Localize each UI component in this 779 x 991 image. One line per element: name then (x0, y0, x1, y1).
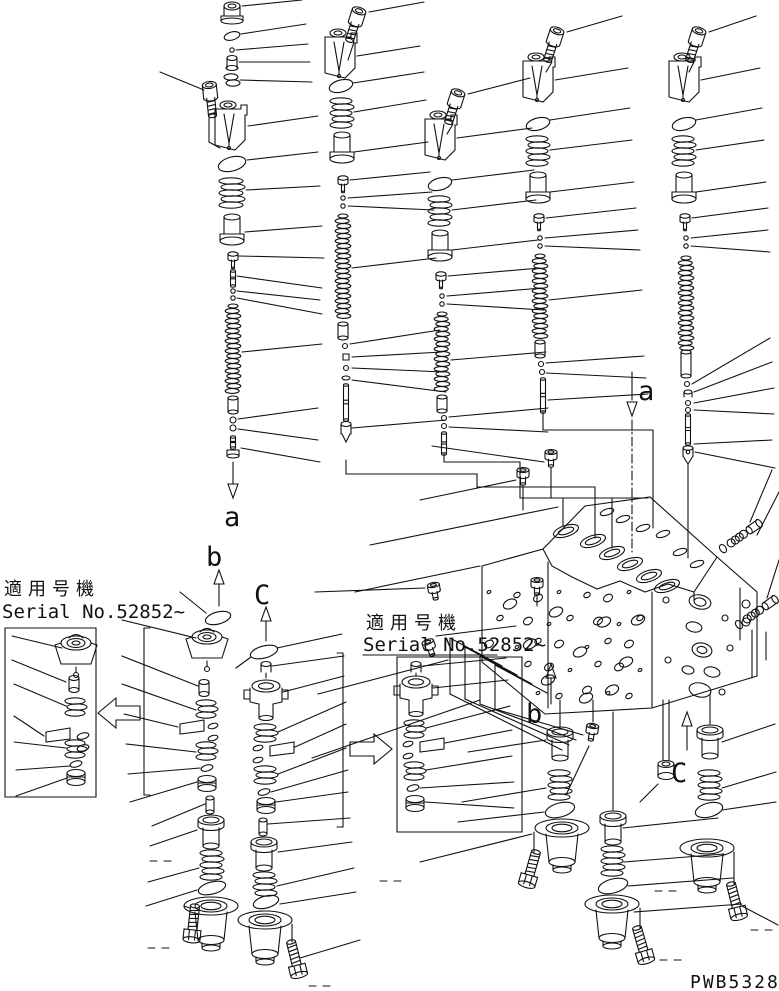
section-label-b-bottom: b (526, 699, 542, 730)
serial-note-left-jp: 適用号機 (4, 579, 100, 600)
section-label-a-top: a (638, 376, 654, 407)
drawing-code: PWB5328B (690, 972, 779, 991)
section-label-c-bottom: C (671, 758, 687, 789)
section-label-b-top: b (206, 542, 222, 573)
parts-diagram-page: a a b C b C 適用号機 Serial No.52852~ 適用号機 S… (0, 0, 779, 991)
serial-variant-insets (5, 620, 522, 980)
main-valve-block (312, 446, 779, 758)
serial-note-left-en: Serial No.52852~ (2, 601, 185, 623)
serial-note-right-en: Serial No.52852~ (363, 634, 546, 656)
section-label-c-top: C (254, 580, 270, 611)
exploded-view-diagram: a a b C b C 適用号機 Serial No.52852~ 適用号機 S… (0, 0, 779, 991)
bottom-exploded-assemblies (420, 723, 778, 966)
section-label-a-chain1: a (224, 502, 240, 533)
serial-note-right-jp: 適用号機 (366, 613, 462, 634)
